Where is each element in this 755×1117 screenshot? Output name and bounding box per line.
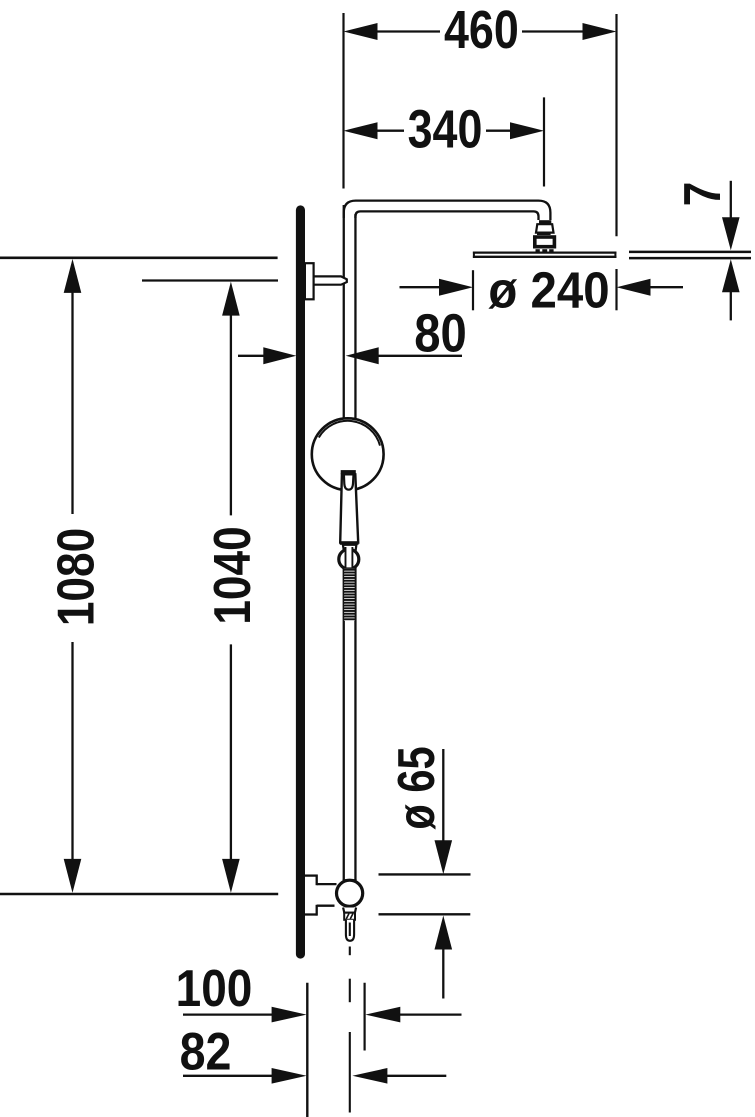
svg-text:ø 240: ø 240 — [488, 262, 609, 319]
svg-text:1080: 1080 — [47, 528, 105, 626]
svg-text:340: 340 — [408, 98, 483, 159]
svg-text:460: 460 — [444, 0, 519, 60]
svg-text:7: 7 — [674, 182, 732, 207]
svg-text:ø 65: ø 65 — [387, 746, 446, 829]
svg-text:1040: 1040 — [204, 526, 262, 624]
svg-text:82: 82 — [180, 1022, 232, 1081]
svg-text:80: 80 — [414, 303, 467, 364]
svg-text:100: 100 — [176, 961, 253, 1018]
